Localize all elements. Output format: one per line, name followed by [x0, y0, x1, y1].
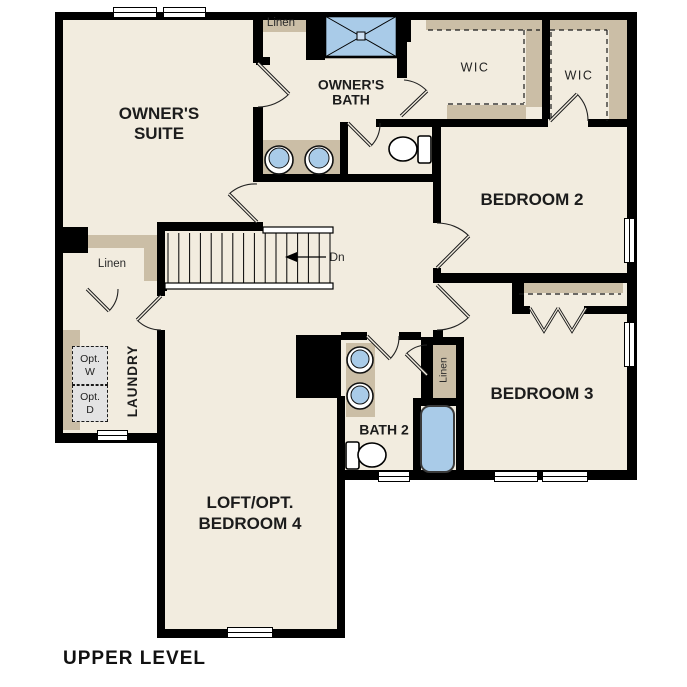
door-arc [437, 317, 469, 330]
door-arc [406, 345, 427, 354]
door-arc [371, 123, 380, 146]
room-label-laundry: LAUNDRY [125, 345, 141, 418]
dryer-label-line1: Opt. [80, 391, 100, 403]
door-arc [137, 320, 161, 330]
room-label-bath2: BATH 2 [359, 422, 409, 439]
washer-label-line2: W [85, 366, 95, 378]
room-label-bedroom2: BEDROOM 2 [481, 190, 584, 210]
sink [347, 383, 373, 409]
bathtub [421, 406, 454, 472]
room-label-owners-suite-line1: OWNER'S [119, 104, 200, 124]
washer-label-line1: Opt. [80, 353, 100, 365]
optional-dryer: Opt. D [72, 385, 108, 422]
stair-rail-top [263, 227, 333, 233]
bifold-doors [530, 308, 586, 331]
stair-rail-bottom [165, 283, 333, 289]
door-arc [437, 223, 469, 236]
room-label-bedroom3: BEDROOM 3 [491, 384, 594, 404]
staircase [168, 233, 330, 283]
closet-label-linen-bath2: Linen [438, 357, 451, 383]
room-label-wic2: WIC [565, 69, 594, 84]
room-label-loft-line2: BEDROOM 4 [199, 514, 302, 534]
stairs-dn-label: Dn [329, 250, 344, 264]
closet-label-linen-hall: Linen [98, 258, 126, 272]
room-label-owners-bath-line2: BATH [332, 92, 370, 109]
page-title: UPPER LEVEL [63, 648, 206, 670]
room-label-wic1: WIC [461, 61, 490, 76]
floor-plan: Opt. W Opt. D OWNER'S SUITE OWNER'S BATH… [0, 0, 687, 687]
closet-label-linen-owners-bath: Linen [267, 17, 295, 31]
dryer-label-line2: D [86, 404, 94, 416]
shower [325, 16, 397, 57]
sink [305, 146, 333, 174]
optional-washer: Opt. W [72, 346, 108, 385]
room-label-owners-suite-line2: SUITE [134, 124, 184, 144]
door-arc [390, 336, 399, 359]
sink [347, 347, 373, 373]
toilet-owners-wc [389, 136, 431, 163]
door-arc [404, 80, 427, 91]
room-label-loft-line1: LOFT/OPT. [207, 493, 294, 513]
toilet-bath2 [346, 442, 386, 469]
door-arc [109, 289, 118, 311]
door-arc [577, 94, 588, 121]
stairs-down-arrow [285, 252, 326, 262]
door-arc [229, 184, 257, 194]
sink [265, 146, 293, 174]
door-arc [258, 94, 289, 107]
